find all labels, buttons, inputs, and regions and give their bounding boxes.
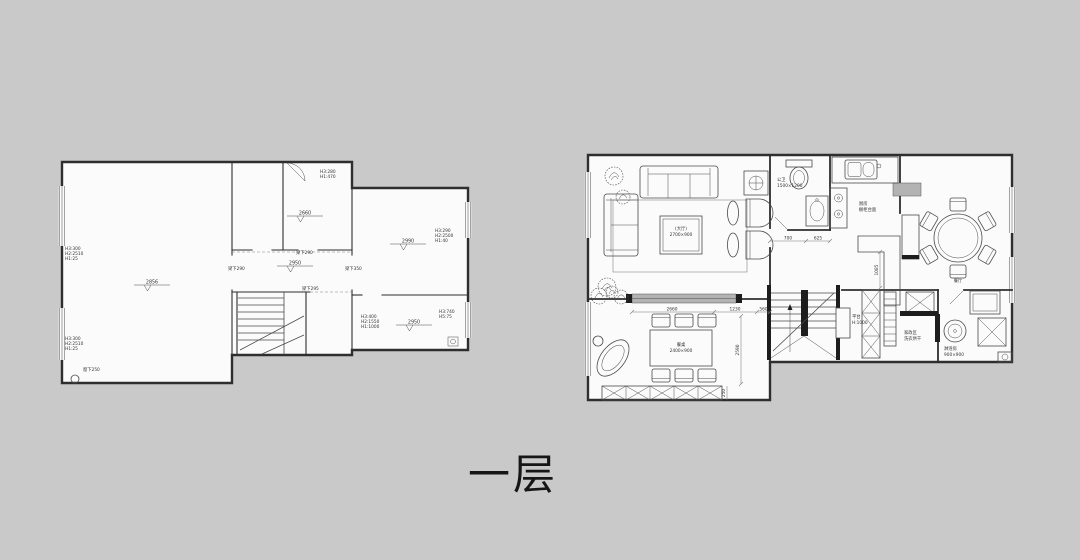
- note-sill: 窗下250: [83, 366, 100, 373]
- note-ne-room: H3:280 H1:470: [320, 169, 336, 180]
- level-value: 2950: [289, 261, 301, 267]
- svg-text:H1:25: H1:25: [65, 346, 78, 352]
- tv-cabinet: [626, 294, 742, 303]
- svg-text:625: 625: [814, 236, 822, 242]
- svg-text:1230: 1230: [730, 307, 741, 313]
- svg-text:900×900: 900×900: [944, 352, 964, 358]
- level-value: 2950: [408, 320, 420, 326]
- svg-text:2590: 2590: [735, 344, 741, 355]
- dining-label: 餐厅: [954, 277, 963, 284]
- svg-text:洗衣烘干: 洗衣烘干: [904, 335, 922, 342]
- svg-text:H1:25: H1:25: [65, 256, 78, 262]
- note-beam-d: 梁下350: [345, 265, 362, 272]
- right-floor-plan: (大厅) 2700×900: [585, 155, 1015, 400]
- svg-text:平台: 平台: [852, 313, 861, 320]
- svg-text:560: 560: [759, 307, 767, 313]
- note-beam-c: 梁下295: [302, 285, 319, 292]
- svg-text:2660: 2660: [667, 307, 678, 313]
- living-room-sublabel: 2700×900: [670, 232, 693, 238]
- floorplan-sheet: 2856 2660 2950 2990 2950 H3:300 H2:2510 …: [0, 0, 1080, 560]
- svg-text:家政区: 家政区: [904, 329, 918, 336]
- svg-text:餐桌: 餐桌: [677, 341, 686, 348]
- wall-chunk: [900, 311, 938, 316]
- svg-text:H1:470: H1:470: [320, 174, 336, 180]
- svg-text:公卫: 公卫: [777, 177, 786, 183]
- living-room-label: (大厅): [675, 225, 687, 232]
- svg-text:700: 700: [784, 236, 792, 242]
- wall-chunk: [935, 314, 940, 342]
- left-floor-plan: 2856 2660 2950 2990 2950 H3:300 H2:2510 …: [59, 162, 472, 383]
- svg-text:H5:75: H5:75: [439, 314, 452, 320]
- svg-text:橱柜台面: 橱柜台面: [859, 206, 877, 213]
- svg-text:H1:1000: H1:1000: [361, 324, 380, 330]
- note-beam-a: 梁下290: [228, 265, 245, 272]
- svg-text:H1:40: H1:40: [435, 238, 448, 244]
- svg-text:厨房: 厨房: [859, 200, 868, 207]
- level-value: 2856: [146, 280, 158, 286]
- svg-text:1085: 1085: [874, 264, 880, 275]
- floor-title: 一层: [468, 441, 558, 502]
- note-beam-b: 梁下290: [296, 249, 313, 256]
- level-value: 2660: [299, 211, 311, 217]
- svg-text:1500×1200: 1500×1200: [777, 183, 803, 189]
- svg-text:淋浴房: 淋浴房: [944, 345, 957, 352]
- svg-text:250: 250: [721, 389, 727, 397]
- level-value: 2990: [402, 239, 414, 245]
- svg-text:2400×900: 2400×900: [670, 348, 693, 354]
- svg-text:H:1000: H:1000: [852, 320, 868, 326]
